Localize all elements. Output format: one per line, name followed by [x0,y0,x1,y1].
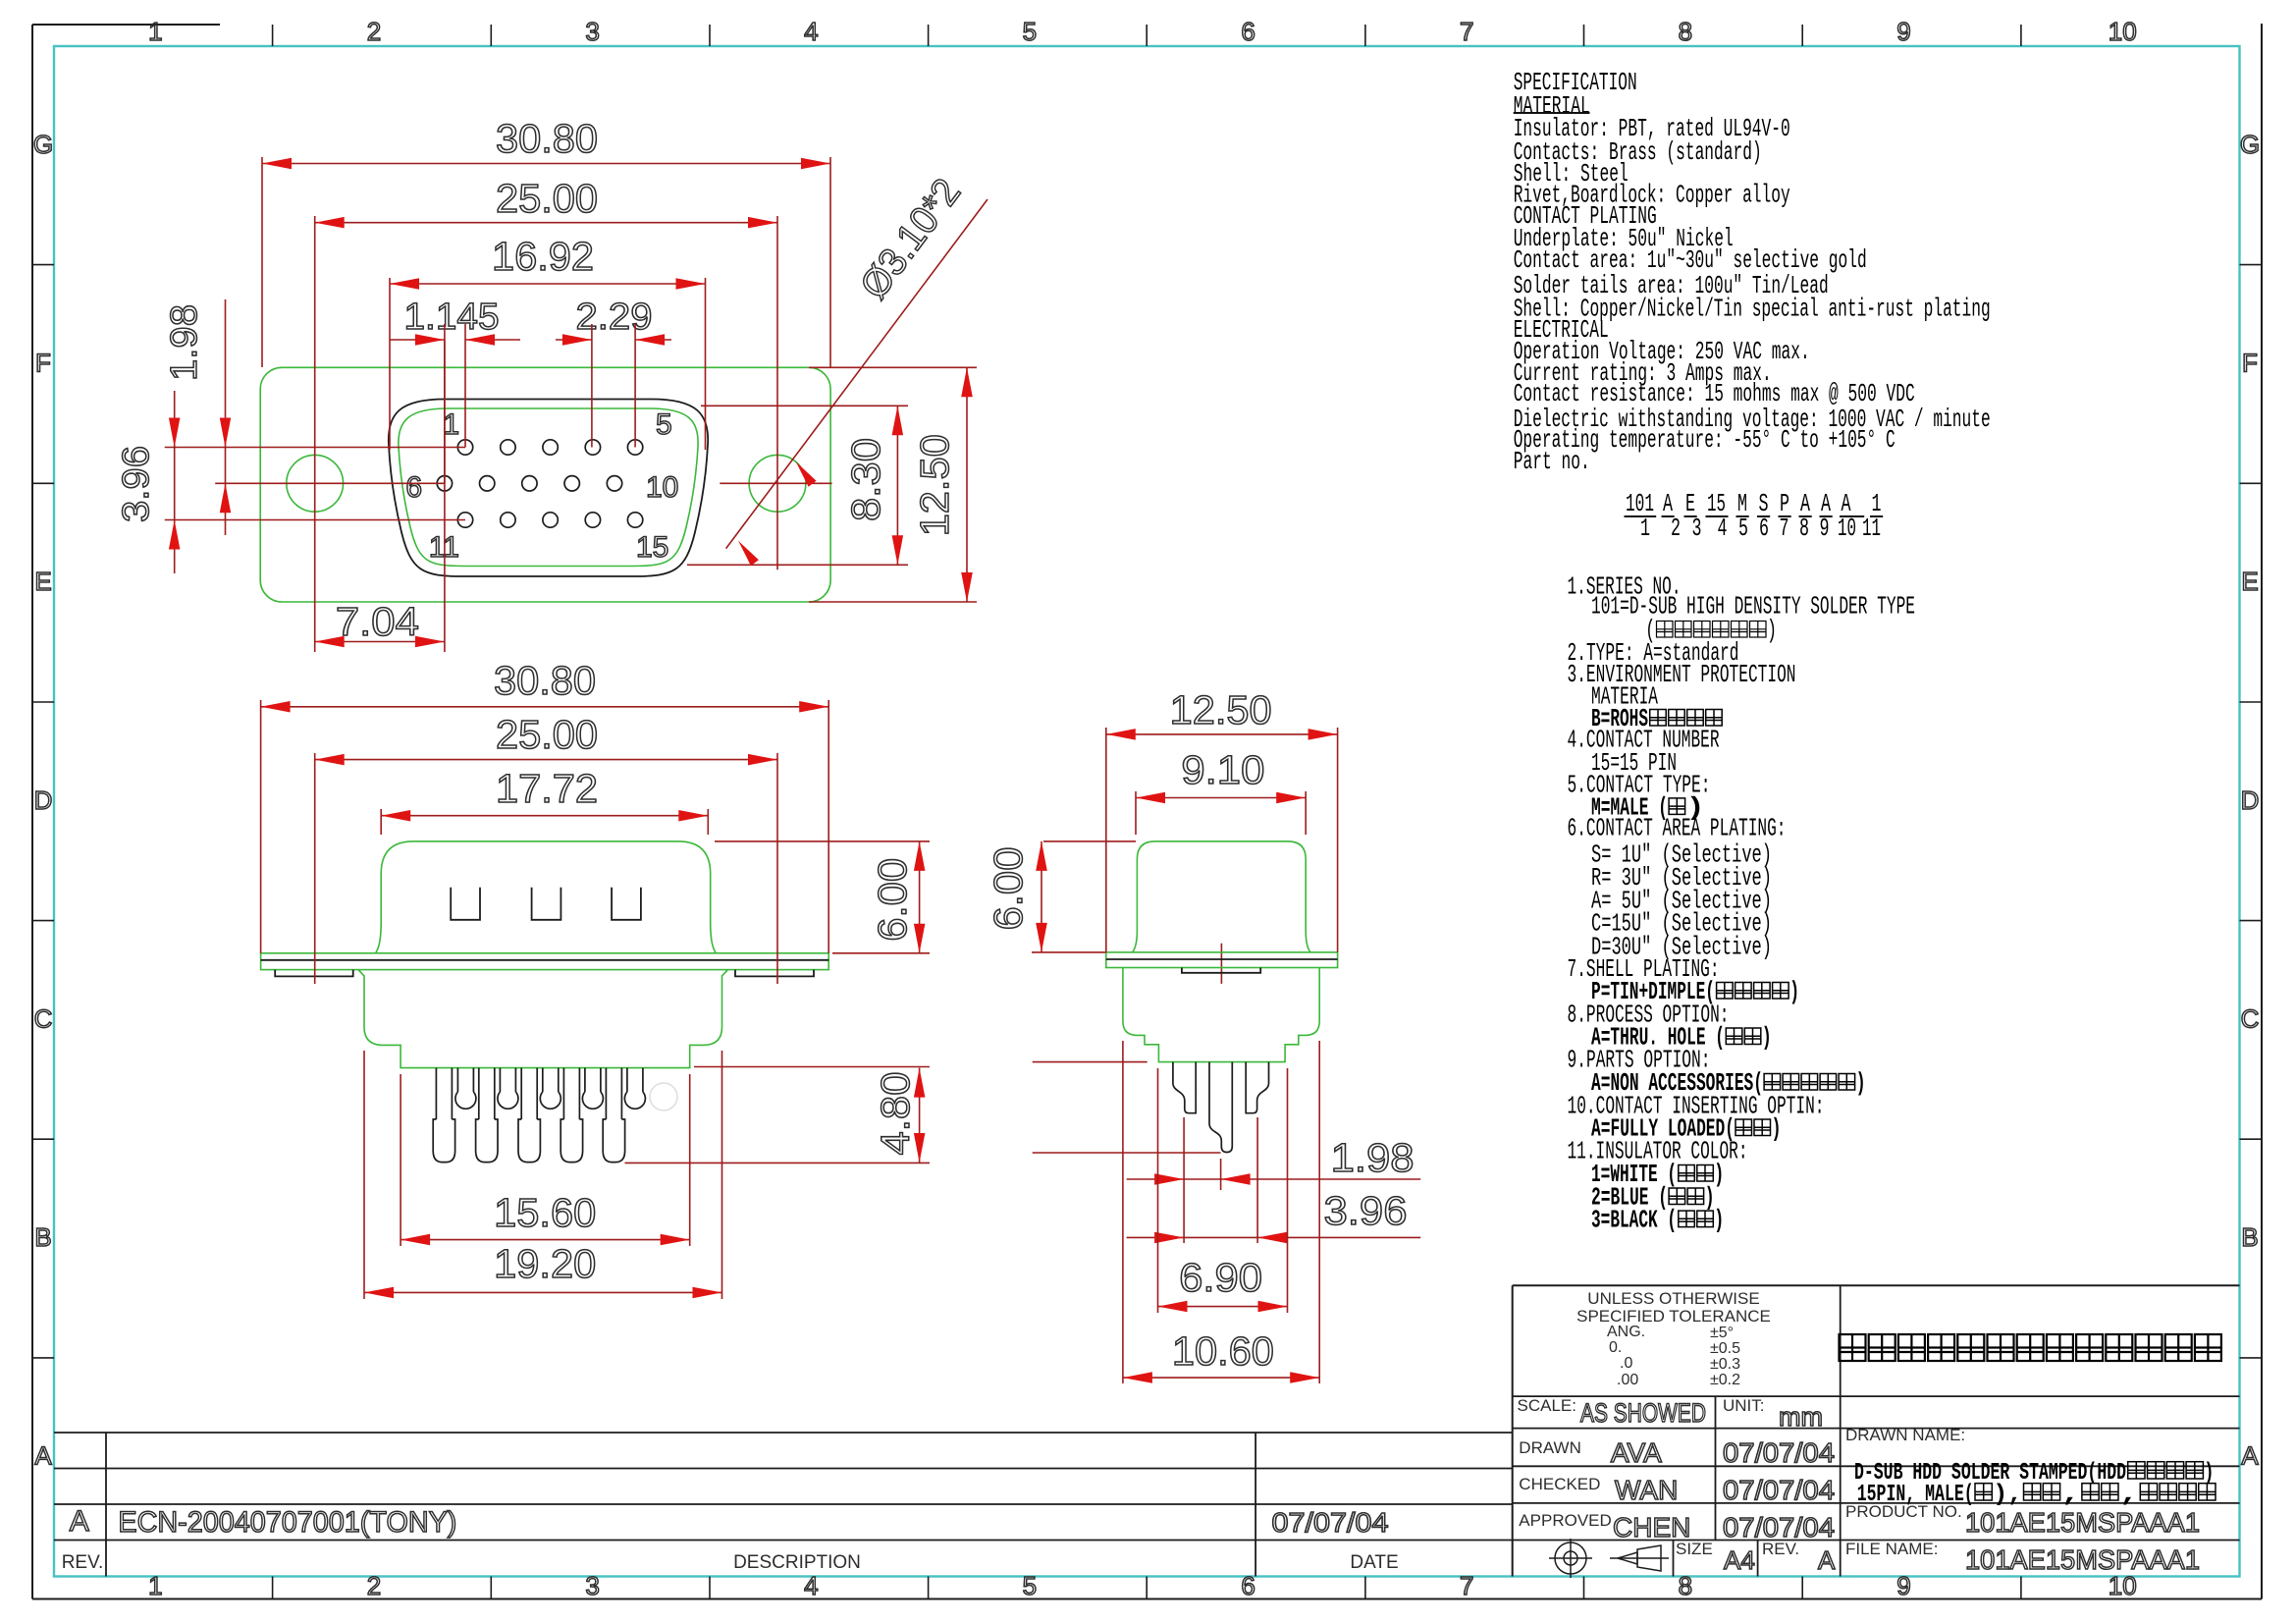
svg-text:): ) [1767,616,1777,645]
svg-text:2.29: 2.29 [576,297,653,338]
svg-text:8.30: 8.30 [843,438,888,521]
svg-text:A4: A4 [1724,1545,1755,1575]
svg-text:12.50: 12.50 [912,434,957,536]
svg-text:6: 6 [405,471,422,504]
svg-text:A: A [1818,1545,1836,1575]
svg-text:mm: mm [1779,1402,1823,1432]
svg-text:3.96: 3.96 [1324,1188,1408,1233]
svg-text:REV.: REV. [1762,1540,1799,1558]
svg-text:5: 5 [1738,514,1748,543]
svg-text:1.98: 1.98 [164,304,205,381]
svg-text:D: D [2241,785,2260,815]
svg-text:ECN-20040707001(TONY): ECN-20040707001(TONY) [118,1506,456,1539]
svg-text:G: G [33,130,53,159]
svg-text:1: 1 [148,17,162,46]
svg-text:DATE: DATE [1350,1552,1398,1573]
svg-text:2: 2 [367,1571,381,1600]
svg-text:07/07/04: 07/07/04 [1723,1437,1835,1468]
svg-text:APPROVED: APPROVED [1519,1511,1611,1530]
svg-text:F: F [35,349,51,378]
svg-text:7: 7 [1780,514,1789,543]
svg-text:6.90: 6.90 [1179,1255,1262,1300]
svg-text:,: , [2119,1482,2139,1508]
svg-text:15.60: 15.60 [494,1190,596,1235]
svg-text:10: 10 [2109,1571,2137,1600]
svg-text:4: 4 [1718,514,1728,543]
svg-text:07/07/04: 07/07/04 [1723,1512,1835,1543]
svg-text:1.145: 1.145 [404,297,500,338]
svg-text:11: 11 [1862,514,1881,543]
svg-text:AVA: AVA [1611,1437,1662,1468]
svg-text:.0: .0 [1620,1355,1632,1372]
svg-text:6.00: 6.00 [870,858,915,942]
svg-text:15: 15 [636,531,668,564]
svg-text:Part no.: Part no. [1514,447,1590,476]
svg-text:3.96: 3.96 [116,446,157,522]
svg-text:7: 7 [1460,1571,1473,1600]
svg-text:AS SHOWED: AS SHOWED [1580,1398,1706,1428]
svg-text:6: 6 [1241,1571,1255,1600]
svg-text:PRODUCT NO.: PRODUCT NO. [1845,1502,1962,1521]
svg-text:DESCRIPTION: DESCRIPTION [733,1552,861,1573]
svg-text:101=D-SUB HIGH DENSITY SOLDER: 101=D-SUB HIGH DENSITY SOLDER TYPE [1591,592,1915,622]
svg-text:CHEN: CHEN [1613,1512,1690,1543]
svg-text:UNLESS OTHERWISE: UNLESS OTHERWISE [1587,1289,1759,1308]
svg-text:),: ), [1993,1482,2022,1508]
svg-text:ANG.: ANG. [1607,1324,1645,1340]
svg-text:G: G [2240,130,2260,159]
svg-text:): ) [1705,1183,1715,1213]
svg-text:10: 10 [2109,17,2137,46]
svg-text:DRAWN NAME:: DRAWN NAME: [1845,1426,1965,1444]
svg-text:): ) [1762,1023,1772,1053]
svg-text:5: 5 [1023,17,1037,46]
svg-text:A: A [70,1505,89,1538]
svg-text:10: 10 [1838,514,1856,543]
svg-text:2: 2 [1671,514,1681,543]
svg-text:8: 8 [1799,514,1809,543]
svg-text:D: D [34,785,53,815]
svg-text:3: 3 [1692,514,1702,543]
svg-text:9: 9 [1820,514,1830,543]
svg-text:0.: 0. [1609,1339,1622,1356]
svg-text:REV.: REV. [62,1552,104,1573]
svg-text:B: B [2241,1222,2258,1252]
svg-text:25.00: 25.00 [496,712,598,757]
svg-text:6: 6 [1241,17,1255,46]
svg-text:10.60: 10.60 [1172,1328,1274,1374]
svg-text:UNIT:: UNIT: [1723,1396,1765,1415]
svg-text:9: 9 [1896,17,1910,46]
svg-text:1: 1 [443,408,459,441]
svg-text:30.80: 30.80 [494,658,596,703]
svg-text:DRAWN: DRAWN [1519,1438,1581,1457]
svg-text:9: 9 [1896,1571,1910,1600]
svg-text:2: 2 [367,17,381,46]
svg-text:): ) [1714,1160,1724,1189]
svg-text:A: A [2241,1441,2259,1471]
svg-text:6.CONTACT AREA PLATING:: 6.CONTACT AREA PLATING: [1568,814,1787,843]
svg-text:,: , [2061,1482,2081,1508]
svg-text:7.04: 7.04 [336,599,419,644]
svg-text:4.80: 4.80 [873,1072,918,1156]
svg-text:): ) [1714,1206,1724,1235]
svg-text:3: 3 [585,1571,599,1600]
svg-text:C: C [2241,1003,2260,1033]
svg-text:4: 4 [804,17,818,46]
svg-text:16.92: 16.92 [492,234,594,279]
svg-text:1: 1 [148,1571,162,1600]
svg-text:FILE NAME:: FILE NAME: [1845,1540,1938,1558]
svg-text:12.50: 12.50 [1170,687,1272,732]
svg-text:E: E [2241,567,2258,596]
svg-text:1.98: 1.98 [1331,1135,1415,1180]
svg-text:07/07/04: 07/07/04 [1272,1507,1389,1538]
svg-text:C: C [34,1003,53,1033]
svg-text:.00: .00 [1617,1372,1638,1388]
svg-text:±0.2: ±0.2 [1710,1372,1740,1388]
svg-text:E: E [34,567,51,596]
svg-text:A: A [34,1441,52,1471]
svg-text:6.00: 6.00 [986,847,1031,931]
svg-text:10: 10 [646,471,678,504]
svg-text:19.20: 19.20 [494,1241,596,1286]
svg-text:±0.3: ±0.3 [1710,1356,1740,1373]
svg-text:F: F [2242,349,2258,378]
svg-text:9.10: 9.10 [1181,747,1264,792]
svg-text:): ) [1772,1114,1782,1144]
svg-text:07/07/04: 07/07/04 [1723,1475,1835,1505]
svg-text:5: 5 [656,408,672,441]
svg-text:30.80: 30.80 [496,116,598,161]
svg-text:±0.5: ±0.5 [1710,1340,1740,1357]
svg-text:4: 4 [804,1571,818,1600]
svg-text:CHECKED: CHECKED [1519,1475,1600,1493]
svg-text:SCALE:: SCALE: [1518,1396,1576,1415]
svg-text:): ) [2204,1460,2214,1487]
svg-text:SPECIFIED TOLERANCE: SPECIFIED TOLERANCE [1576,1307,1771,1326]
svg-text:8: 8 [1679,1571,1692,1600]
svg-text:5: 5 [1023,1571,1037,1600]
svg-text:3=BLACK (: 3=BLACK ( [1591,1206,1677,1235]
svg-text:): ) [1856,1068,1866,1098]
svg-text:1: 1 [1640,514,1650,543]
svg-text:7: 7 [1460,17,1473,46]
svg-text:17.72: 17.72 [496,766,598,811]
svg-text:SIZE: SIZE [1676,1540,1713,1558]
svg-text:101AE15MSPAAA1: 101AE15MSPAAA1 [1965,1544,2200,1575]
svg-text:3: 3 [585,17,599,46]
svg-text:25.00: 25.00 [496,176,598,221]
svg-text:B: B [34,1222,51,1252]
svg-text:WAN: WAN [1615,1475,1678,1505]
svg-text:101AE15MSPAAA1: 101AE15MSPAAA1 [1965,1507,2200,1538]
svg-text:): ) [1789,977,1799,1006]
svg-text:8: 8 [1679,17,1692,46]
svg-text:6: 6 [1759,514,1769,543]
svg-text:±5°: ±5° [1710,1325,1734,1341]
